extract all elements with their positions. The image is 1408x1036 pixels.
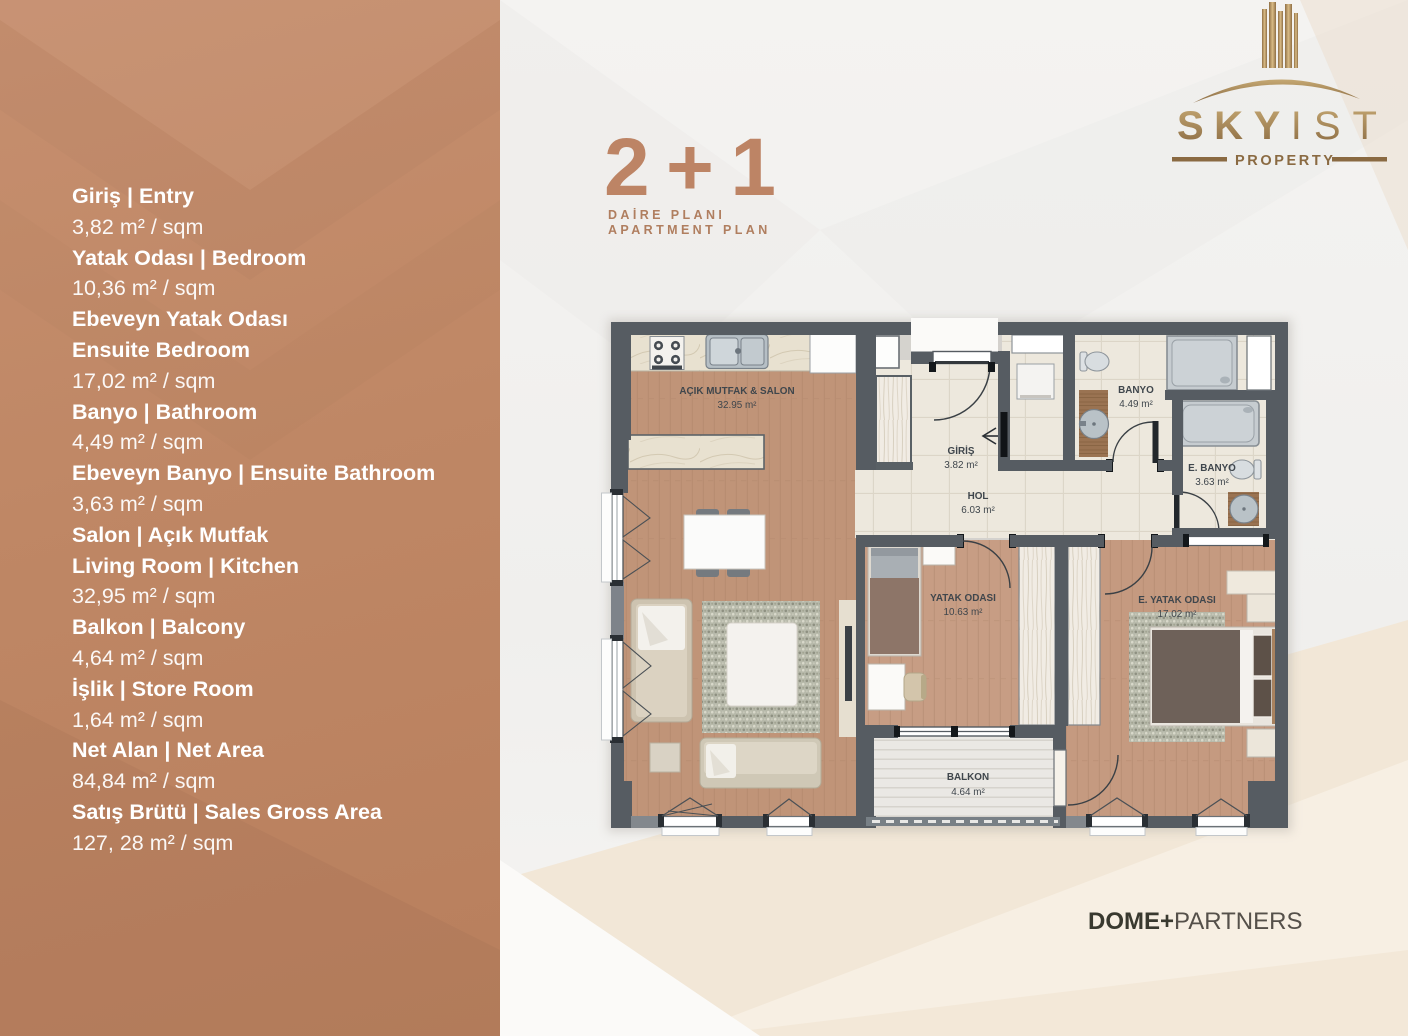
- svg-text:GİRİŞ: GİRİŞ: [948, 446, 975, 457]
- svg-text:SKYIST: SKYIST: [1177, 104, 1389, 148]
- svg-text:3.63 m²: 3.63 m²: [1195, 477, 1229, 488]
- svg-text:3.82 m²: 3.82 m²: [944, 460, 978, 471]
- svg-text:E. BANYO: E. BANYO: [1188, 463, 1236, 474]
- svg-text:E. YATAK ODASI: E. YATAK ODASI: [1138, 595, 1216, 606]
- svg-text:HOL: HOL: [968, 491, 989, 502]
- svg-text:6.03 m²: 6.03 m²: [961, 505, 995, 516]
- svg-text:17.02 m²: 17.02 m²: [1158, 609, 1198, 620]
- svg-text:32.95 m²: 32.95 m²: [718, 400, 758, 411]
- svg-text:YATAK ODASI: YATAK ODASI: [930, 593, 996, 604]
- svg-text:BANYO: BANYO: [1118, 385, 1154, 396]
- svg-text:AÇIK MUTFAK & SALON: AÇIK MUTFAK & SALON: [679, 386, 794, 397]
- svg-text:BALKON: BALKON: [947, 772, 989, 783]
- svg-text:PROPERTY: PROPERTY: [1235, 153, 1336, 169]
- svg-text:10.63 m²: 10.63 m²: [944, 607, 984, 618]
- svg-text:4.64 m²: 4.64 m²: [951, 787, 985, 798]
- svg-text:4.49 m²: 4.49 m²: [1119, 399, 1153, 410]
